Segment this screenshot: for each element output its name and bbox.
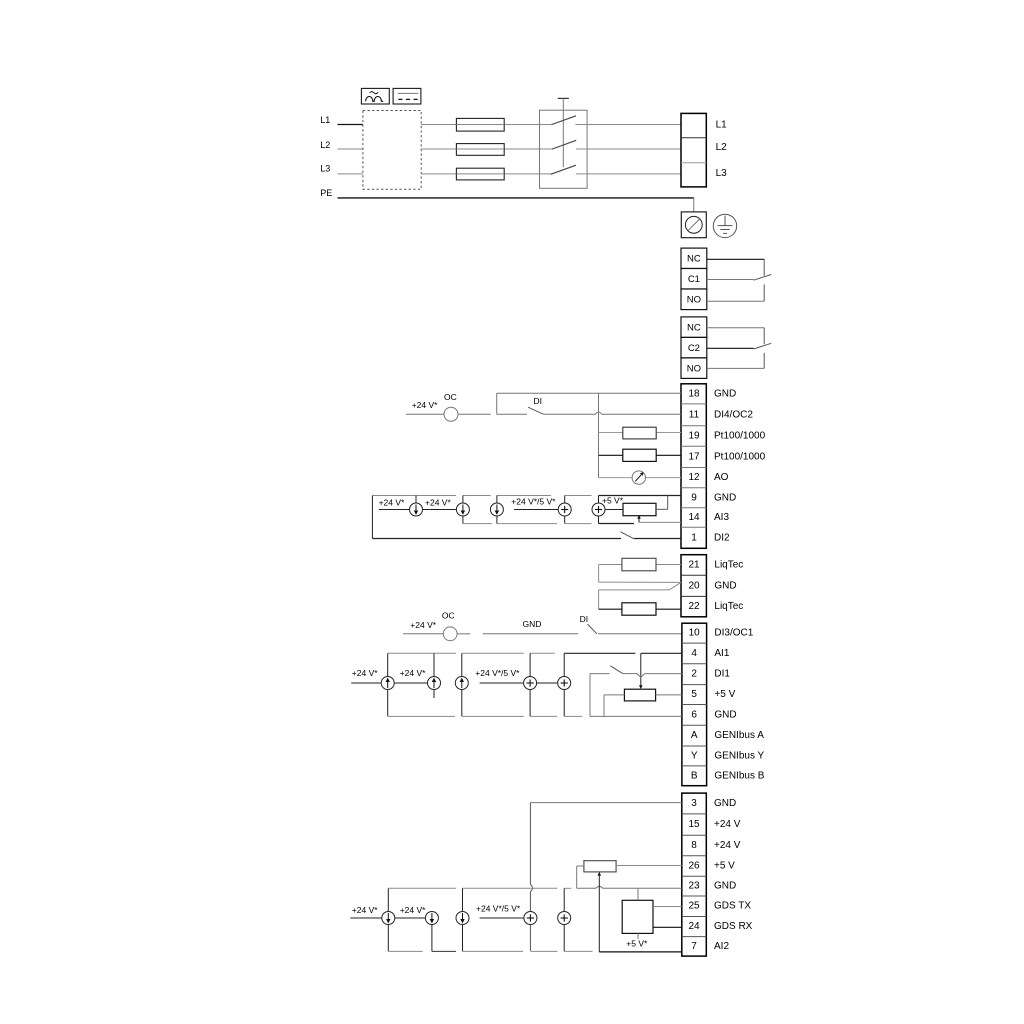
svg-text:GDS RX: GDS RX [714,921,753,932]
svg-text:GND: GND [714,580,736,591]
svg-text:Pt100/1000: Pt100/1000 [714,431,766,442]
svg-text:22: 22 [688,601,700,612]
svg-text:17: 17 [688,451,700,462]
svg-text:6: 6 [691,709,697,720]
svg-text:DI1: DI1 [714,669,730,680]
svg-text:NO: NO [687,363,701,374]
svg-text:7: 7 [691,941,697,952]
svg-text:4: 4 [691,648,697,659]
svg-text:L3: L3 [320,163,330,173]
svg-text:9: 9 [691,492,697,503]
svg-text:AI3: AI3 [714,512,729,523]
svg-text:23: 23 [688,881,700,892]
svg-text:GND: GND [714,388,736,399]
svg-text:15: 15 [688,819,700,830]
svg-text:18: 18 [688,388,700,399]
svg-text:+24 V*: +24 V* [352,668,378,678]
svg-text:OC: OC [444,392,457,402]
svg-text:+5 V*: +5 V* [602,496,624,506]
svg-text:1: 1 [691,532,697,543]
svg-text:LiqTec: LiqTec [714,601,743,612]
svg-text:DI2: DI2 [714,532,730,543]
svg-text:+24 V*: +24 V* [352,905,378,915]
svg-text:GENIbus A: GENIbus A [714,730,764,741]
svg-text:L1: L1 [716,120,728,131]
svg-text:25: 25 [688,901,700,912]
svg-text:2: 2 [691,669,697,680]
svg-text:B: B [691,770,698,781]
svg-text:DI3/OC1: DI3/OC1 [714,628,753,639]
svg-text:+24 V*: +24 V* [412,400,438,410]
svg-text:+5 V*: +5 V* [626,938,648,948]
svg-text:NC: NC [687,322,701,333]
svg-text:GENIbus B: GENIbus B [714,770,764,781]
svg-text:LiqTec: LiqTec [714,560,743,571]
svg-text:L2: L2 [716,142,728,153]
svg-text:NC: NC [687,254,701,265]
svg-text:+24 V: +24 V [714,840,741,851]
svg-text:+5 V: +5 V [714,861,735,872]
svg-text:C1: C1 [688,274,700,285]
svg-text:L1: L1 [320,115,330,125]
svg-text:AI2: AI2 [714,941,729,952]
svg-text:26: 26 [688,861,700,872]
svg-text:8: 8 [691,840,697,851]
svg-text:PE: PE [320,188,332,198]
svg-text:C2: C2 [688,343,700,354]
svg-text:GND: GND [714,709,736,720]
svg-text:GND: GND [523,619,542,629]
svg-text:+24 V*/5 V*: +24 V*/5 V* [511,497,556,507]
svg-text:NO: NO [687,295,701,306]
svg-text:3: 3 [691,798,697,809]
svg-text:10: 10 [689,628,701,639]
svg-text:Pt100/1000: Pt100/1000 [714,451,766,462]
svg-text:+24 V*/5 V*: +24 V*/5 V* [476,904,521,914]
svg-text:Y: Y [691,751,698,762]
svg-text:DI: DI [580,614,589,624]
svg-text:OC: OC [442,610,455,620]
svg-text:DI4/OC2: DI4/OC2 [714,409,753,420]
svg-text:+24 V*/5 V*: +24 V*/5 V* [475,668,520,678]
svg-text:11: 11 [689,409,700,420]
svg-text:19: 19 [688,431,700,442]
svg-text:14: 14 [688,512,700,523]
svg-text:GDS TX: GDS TX [714,901,751,912]
svg-text:DI: DI [534,396,543,406]
svg-text:20: 20 [688,580,700,591]
svg-text:AO: AO [714,472,729,483]
svg-text:GND: GND [714,492,736,503]
svg-text:+24 V*: +24 V* [400,668,426,678]
svg-text:12: 12 [688,472,700,483]
svg-text:+24 V*: +24 V* [425,497,451,507]
svg-text:5: 5 [691,689,697,700]
svg-text:L2: L2 [320,140,330,150]
svg-text:+24 V*: +24 V* [400,905,426,915]
svg-text:+24 V*: +24 V* [410,620,436,630]
svg-text:+24 V*: +24 V* [379,497,405,507]
svg-text:+24 V: +24 V [714,819,741,830]
svg-text:L3: L3 [716,168,728,179]
svg-text:GND: GND [714,881,736,892]
svg-text:GND: GND [714,798,736,809]
svg-text:AI1: AI1 [714,648,729,659]
svg-text:GENIbus Y: GENIbus Y [714,751,764,762]
svg-text:21: 21 [688,560,700,571]
svg-text:24: 24 [688,921,700,932]
svg-text:A: A [691,730,698,741]
svg-text:+5 V: +5 V [714,689,735,700]
